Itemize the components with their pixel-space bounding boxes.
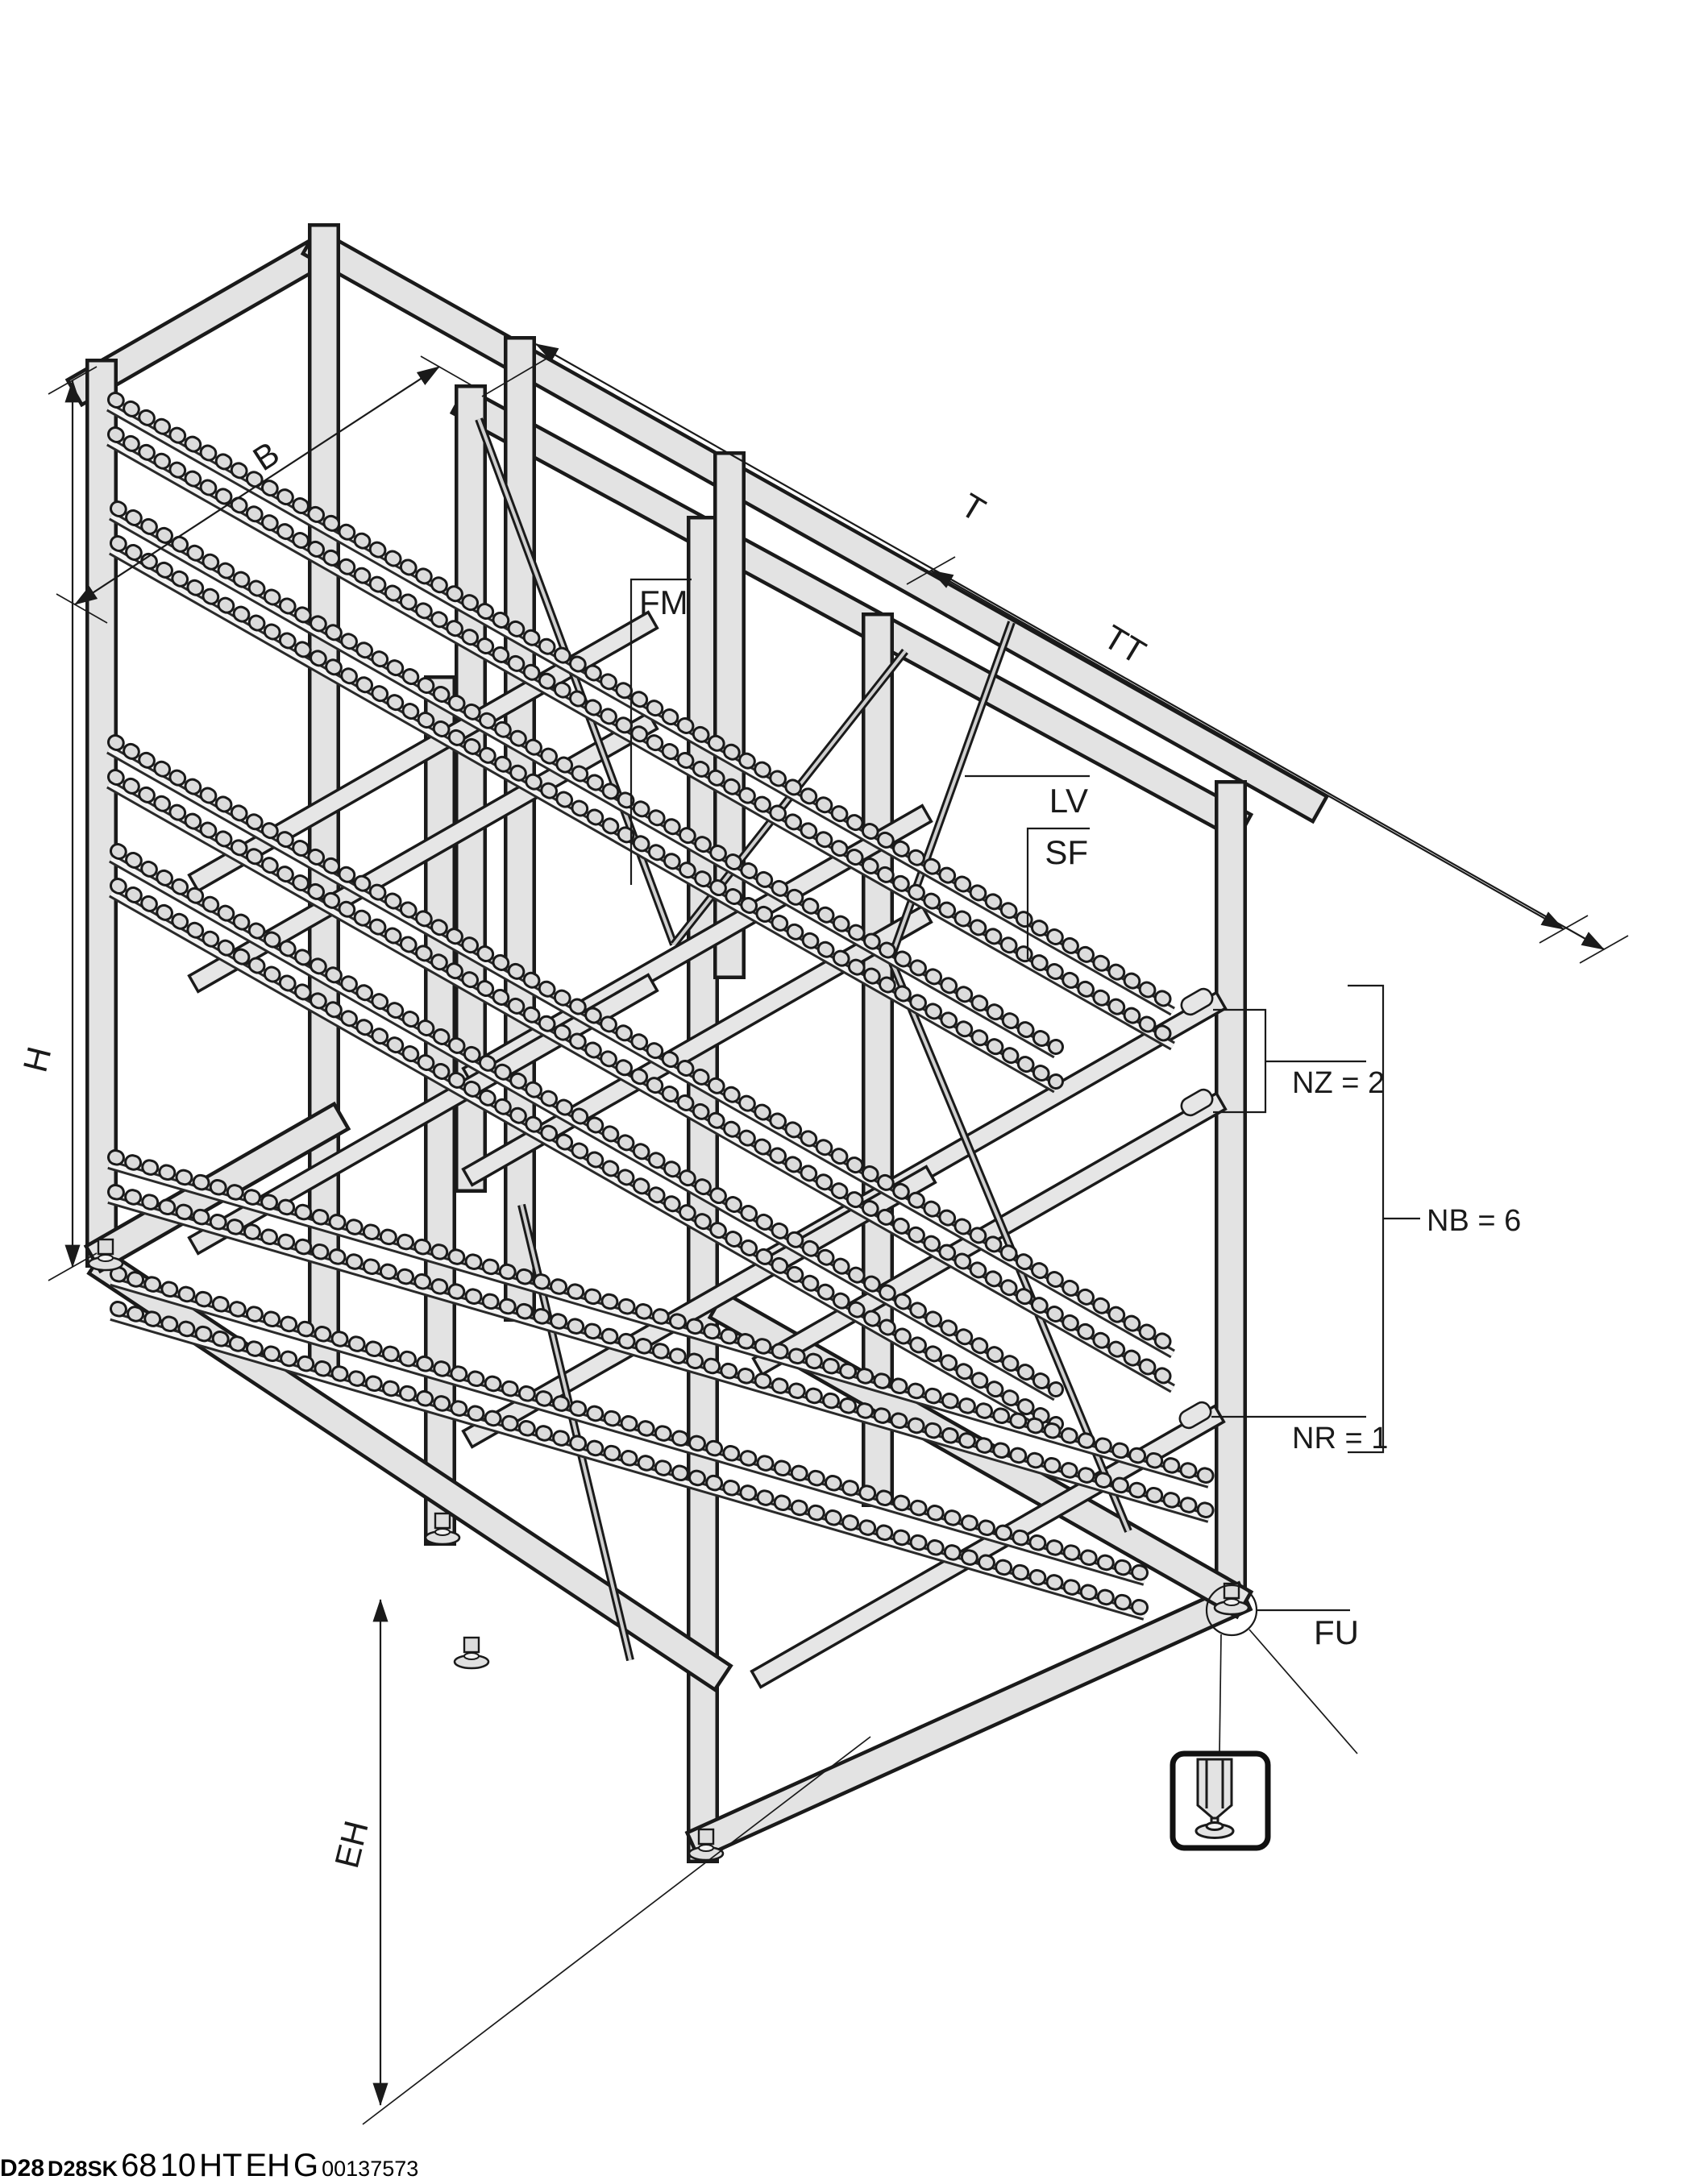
dim-label-height: H: [15, 1043, 58, 1076]
roller-tracks: [109, 400, 1209, 1616]
callout-label-foot: FU: [1314, 1613, 1359, 1651]
icon-label-d28sk: D28SK: [48, 2157, 118, 2181]
dim-label-infeed-height: EH: [327, 1817, 376, 1871]
callout-label-brace: LV: [1049, 782, 1088, 820]
dim-label-total-depth: TT: [1097, 617, 1152, 671]
detail-dim-gap: 10: [160, 2148, 197, 2183]
vertical-post-section: 68 10 HT EH G: [121, 2165, 322, 2179]
detail-dim-level-pitch: HT: [199, 2148, 242, 2183]
count-label-return-levels: NR = 1: [1292, 1422, 1388, 1455]
technical-drawing-page: B TT T H EH FM LV SF NZ = 2: [0, 0, 1691, 2148]
detail-dim-bracket-offset: 68: [121, 2148, 157, 2183]
rack-isometric-view: [87, 239, 1307, 1860]
callout-label-frame-profile: SF: [1045, 833, 1088, 871]
dim-label-depth: T: [954, 486, 991, 529]
detail-dim-incline-angle: G: [293, 2148, 318, 2183]
track-end-caps: [1177, 986, 1215, 1430]
foot-option-leveling: [1173, 1754, 1268, 1848]
product-icon-d28: D28: [0, 2165, 48, 2179]
product-icon-d28sk: D28SK: [48, 2165, 121, 2179]
count-label-supply-levels: NZ = 2: [1292, 1066, 1385, 1100]
count-label-tracks: NB = 6: [1427, 1204, 1521, 1238]
mounting-detail-view: 68 10 HT EH G: [121, 2165, 322, 2179]
detail-dim-infeed-height: EH: [245, 2148, 290, 2183]
icon-label-d28: D28: [0, 2155, 44, 2182]
drawing-id: 00137573: [322, 2157, 418, 2181]
callout-label-roller-track: FM: [639, 583, 688, 621]
